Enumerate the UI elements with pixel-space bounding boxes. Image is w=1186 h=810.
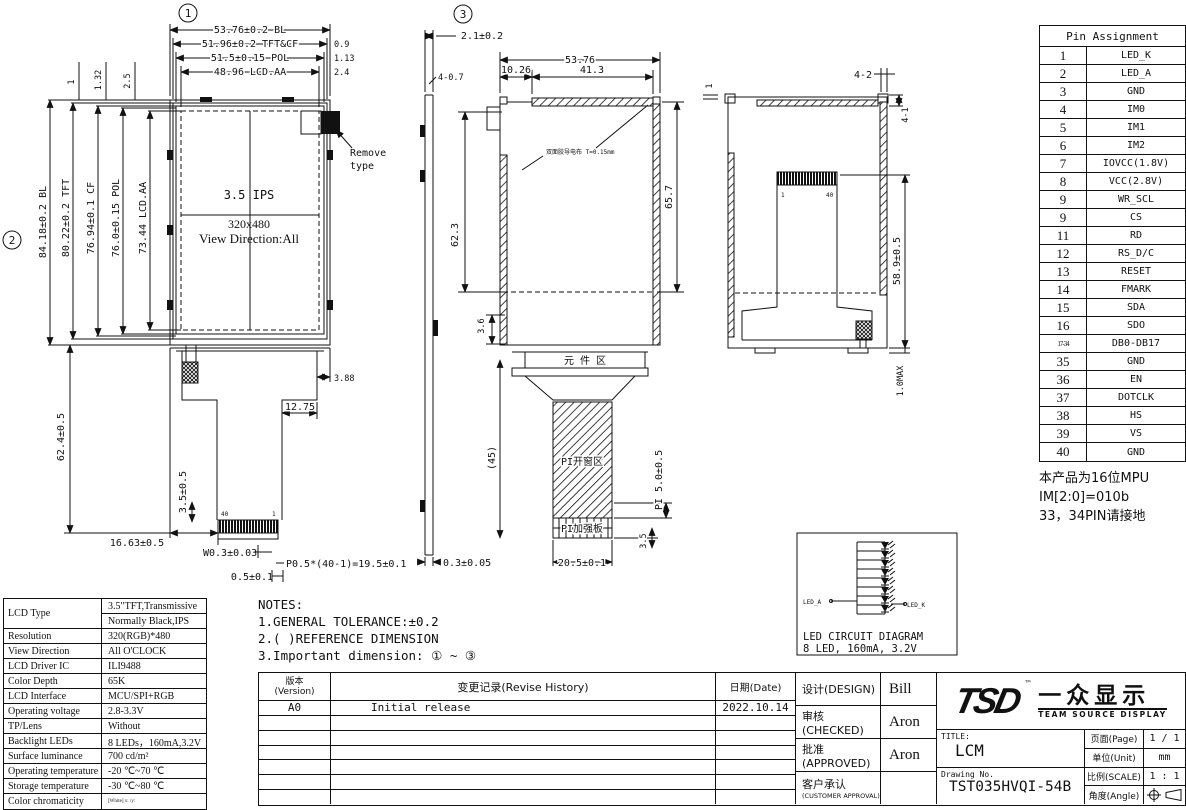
- pin-number-cell: 2: [1040, 65, 1087, 82]
- pin-table-row: 17-34 DB0-DB17: [1040, 335, 1185, 353]
- pin-signal-cell: RESET: [1087, 263, 1185, 280]
- spec-table-row: Storage temperature -30 ℃~80 ℃: [4, 779, 206, 794]
- svg-text:3.88: 3.88: [334, 374, 354, 384]
- led-diagram-subtitle: 8 LED, 160mA, 3.2V: [803, 643, 917, 655]
- pin-signal-cell: SDA: [1087, 299, 1185, 316]
- svg-text:76.0±0.15 POL: 76.0±0.15 POL: [111, 179, 122, 257]
- svg-text:4-1: 4-1: [901, 107, 911, 122]
- pin-table-row: 15 SDA: [1040, 299, 1185, 317]
- pin-signal-cell: EN: [1087, 371, 1185, 388]
- pin-table-row: 9 CS: [1040, 209, 1185, 227]
- svg-text:3.5±0.5: 3.5±0.5: [178, 471, 189, 513]
- drawing-no-value: TST035HVQI-54B: [941, 779, 1080, 795]
- led-cathode-label: LED_K: [907, 602, 925, 609]
- svg-text:48.96 LCD.AA: 48.96 LCD.AA: [214, 67, 286, 78]
- svg-text:41.3: 41.3: [580, 65, 604, 76]
- pin-signal-cell: WR_SCL: [1087, 191, 1185, 208]
- back-connector: [777, 172, 837, 185]
- approval-column: 设计(DESIGN) Bill 审核(CHECKED) Aron 批准(APPR…: [796, 673, 936, 804]
- svg-text:10.26: 10.26: [501, 65, 531, 76]
- view-direction-label: View Direction:All: [199, 231, 299, 246]
- svg-text:PI开窗区: PI开窗区: [561, 455, 603, 468]
- spec-label: LCD Driver IC: [4, 659, 102, 673]
- pin-number-cell: 38: [1040, 407, 1087, 424]
- spec-value: 65K: [102, 674, 206, 688]
- unit-row: 单位(Unit) mm: [1085, 749, 1185, 768]
- svg-text:62.3: 62.3: [450, 223, 461, 247]
- spec-row-lcd-type: LCD Type 3.5"TFT,Transmissive Normally B…: [4, 599, 206, 629]
- pin-table-row: 16 SDO: [1040, 317, 1185, 335]
- revision-row-empty: [259, 731, 796, 746]
- approved-row: 批准(APPROVED) Aron: [796, 739, 936, 772]
- title-block: TSD ™ 一众显示 TEAM SOURCE DISPLAY TITLE: LC…: [936, 673, 1185, 804]
- approved-label: 批准(APPROVED): [796, 739, 881, 771]
- title-value: LCM: [941, 741, 1080, 760]
- svg-text:1: 1: [781, 192, 785, 199]
- spec-table-body: Resolution 320(RGB)*480 View Direction A…: [4, 629, 206, 809]
- scale-row: 比例(SCALE) 1 : 1: [1085, 768, 1185, 787]
- tsd-logo-icon: TSD: [951, 683, 1022, 719]
- pin-table-title: Pin Assignment: [1040, 26, 1185, 47]
- revision-rows: A0 Initial release 2022.10.14: [259, 701, 796, 804]
- spec-table-row: LCD Driver IC ILI9488: [4, 659, 206, 674]
- svg-text:PI 5.0±0.5: PI 5.0±0.5: [654, 450, 665, 510]
- svg-text:16.63±0.5: 16.63±0.5: [110, 538, 164, 549]
- checked-row: 审核(CHECKED) Aron: [796, 706, 936, 739]
- page-row: 页面(Page) 1 / 1: [1085, 730, 1185, 749]
- pin-signal-cell: RD: [1087, 227, 1185, 244]
- svg-text:58.9±0.5: 58.9±0.5: [892, 237, 903, 285]
- checked-signature: Aron: [881, 706, 936, 738]
- pin-number-cell: 37: [1040, 389, 1087, 406]
- spec-label: Surface luminance: [4, 749, 102, 763]
- svg-text:40: 40: [826, 192, 834, 199]
- pin-1-label: 1: [272, 511, 276, 518]
- pin-signal-cell: FMARK: [1087, 281, 1185, 298]
- pin-number-cell: 14: [1040, 281, 1087, 298]
- pin-number-cell: 7: [1040, 155, 1087, 172]
- pin-table-row: 38 HS: [1040, 407, 1185, 425]
- spec-label: TP/Lens: [4, 719, 102, 733]
- notes-section: NOTES: 1.GENERAL TOLERANCE:±0.2 2.( )REF…: [258, 596, 476, 664]
- pin-table-row: 5 IM1: [1040, 119, 1185, 137]
- svg-text:(45): (45): [487, 446, 498, 470]
- angle-row: 角度(Angle): [1085, 786, 1185, 804]
- pin-40-label: 40: [221, 511, 229, 518]
- svg-text:3.6: 3.6: [477, 318, 487, 333]
- remove-note: Remove: [350, 148, 386, 159]
- revision-row-empty: [259, 760, 796, 775]
- pin-number-cell: 11: [1040, 227, 1087, 244]
- spec-table-row: Backlight LEDs 8 LEDs，160mA,3.2V: [4, 734, 206, 749]
- pin-table-row: 40 GND: [1040, 443, 1185, 461]
- spec-table-row: View Direction All O'CLOCK: [4, 644, 206, 659]
- pin-signal-cell: RS_D/C: [1087, 245, 1185, 262]
- pin-table-row: 36 EN: [1040, 371, 1185, 389]
- spec-table-row: Surface luminance 700 cd/m²: [4, 749, 206, 764]
- svg-text:2: 2: [9, 234, 16, 247]
- svg-text:20.5±0.1: 20.5±0.1: [558, 558, 606, 569]
- pin-table-row: 8 VCC(2.8V): [1040, 173, 1185, 191]
- mpu-note-line: 33，34PIN请接地: [1039, 507, 1149, 526]
- spec-label: Operating temperature: [4, 764, 102, 778]
- pin-number-cell: 12: [1040, 245, 1087, 262]
- svg-text:0.5±0.1: 0.5±0.1: [231, 572, 273, 583]
- pin-number-cell: 4: [1040, 101, 1087, 118]
- spec-table-row: LCD Interface MCU/SPI+RGB: [4, 689, 206, 704]
- revision-row-empty: [259, 746, 796, 761]
- spec-value: All O'CLOCK: [102, 644, 206, 658]
- tape-note: 双面胶导电布 T=0.15mm: [546, 148, 615, 156]
- pin-signal-cell: DOTCLK: [1087, 389, 1185, 406]
- pin-signal-cell: IOVCC(1.8V): [1087, 155, 1185, 172]
- pin-table-body: 1 LED_K 2 LED_A 3 GND 4 IM0 5 IM1 6 IM2 …: [1040, 47, 1185, 461]
- pin-signal-cell: IM1: [1087, 119, 1185, 136]
- svg-text:1.13: 1.13: [334, 54, 354, 64]
- svg-text:51.96±0.2 TFT&CF: 51.96±0.2 TFT&CF: [202, 39, 298, 50]
- svg-text:W0.3±0.03: W0.3±0.03: [203, 548, 257, 559]
- pin-number-cell: 39: [1040, 425, 1087, 442]
- pin-signal-cell: GND: [1087, 443, 1185, 461]
- pin-number-cell: 36: [1040, 371, 1087, 388]
- notes-line: 3.Important dimension: ① ~ ③: [258, 647, 476, 664]
- spec-label: LCD Type: [4, 599, 102, 628]
- pin-table-row: 3 GND: [1040, 83, 1185, 101]
- company-name-en: TEAM SOURCE DISPLAY: [1038, 708, 1167, 719]
- pin-table-row: 4 IM0: [1040, 101, 1185, 119]
- mpu-note-line: IM[2:0]=010b: [1039, 488, 1149, 507]
- notes-line: 1.GENERAL TOLERANCE:±0.2: [258, 613, 476, 630]
- svg-text:2.5: 2.5: [123, 73, 133, 88]
- revision-row: A0 Initial release 2022.10.14: [259, 701, 796, 716]
- pin-signal-cell: GND: [1087, 83, 1185, 100]
- svg-text:1: 1: [67, 79, 77, 84]
- svg-text:2.1±0.2: 2.1±0.2: [461, 31, 503, 42]
- pin-table-row: 37 DOTCLK: [1040, 389, 1185, 407]
- design-row: 设计(DESIGN) Bill: [796, 673, 936, 706]
- design-signature: Bill: [881, 673, 936, 705]
- spec-table-row: TP/Lens Without: [4, 719, 206, 734]
- customer-approval-row: 客户承认 (CUSTOMER APPROVAL): [796, 772, 936, 804]
- revision-row-empty: [259, 790, 796, 804]
- checked-label: 审核(CHECKED): [796, 706, 881, 738]
- revision-desc: Initial release: [331, 701, 716, 715]
- spec-value: Without: [102, 719, 206, 733]
- pin-number-cell: 5: [1040, 119, 1087, 136]
- svg-text:P0.5*(40-1)=19.5±0.1: P0.5*(40-1)=19.5±0.1: [286, 559, 406, 570]
- resolution-label: 320x480: [228, 217, 270, 231]
- pin-number-cell: 9: [1040, 191, 1087, 208]
- pin-table-row: 7 IOVCC(1.8V): [1040, 155, 1185, 173]
- pin-number-cell: 35: [1040, 353, 1087, 370]
- spec-value: 8 LEDs，160mA,3.2V: [102, 734, 206, 748]
- svg-text:80.22±0.2 TFT: 80.22±0.2 TFT: [61, 179, 72, 257]
- revision-header: 版本 (Version) 变更记录(Revise History) 日期(Dat…: [259, 673, 796, 701]
- spec-value: -20 ℃~70 ℃: [102, 764, 206, 778]
- front-view: Remove type 3.5 IPS 320x480 View Directi…: [3, 4, 406, 583]
- spec-value: 2.8-3.3V: [102, 704, 206, 718]
- drawing-no-label: Drawing No.: [941, 770, 1080, 779]
- svg-text:PI加强板: PI加强板: [561, 522, 603, 535]
- pin-table-row: 35 GND: [1040, 353, 1185, 371]
- pin-signal-cell: GND: [1087, 353, 1185, 370]
- pin-signal-cell: IM2: [1087, 137, 1185, 154]
- svg-text:2.4: 2.4: [334, 68, 349, 78]
- spec-label: Storage temperature: [4, 779, 102, 793]
- svg-text:4-0.7: 4-0.7: [438, 73, 464, 83]
- company-name-cn: 一众显示: [1038, 684, 1167, 708]
- svg-text:0.9: 0.9: [334, 40, 349, 50]
- spec-value: 320(RGB)*480: [102, 629, 206, 643]
- pin-table-row: 39 VS: [1040, 425, 1185, 443]
- pin-signal-cell: VS: [1087, 425, 1185, 442]
- svg-text:1: 1: [705, 83, 715, 88]
- led-circuit-diagram: LED_A LED_K LED CIRCUIT DIAGRAM 8 LED, 1…: [797, 533, 957, 655]
- pin-table-row: 2 LED_A: [1040, 65, 1185, 83]
- svg-text:84.18±0.2 BL: 84.18±0.2 BL: [38, 186, 49, 258]
- spec-value: ILI9488: [102, 659, 206, 673]
- spec-label: LCD Interface: [4, 689, 102, 703]
- pin-table-row: 6 IM2: [1040, 137, 1185, 155]
- revision-version: A0: [259, 701, 331, 715]
- pin-table-row: 14 FMARK: [1040, 281, 1185, 299]
- pin-table-row: 12 RS_D/C: [1040, 245, 1185, 263]
- pin-signal-cell: LED_A: [1087, 65, 1185, 82]
- pin-number-cell: 9: [1040, 209, 1087, 226]
- pin-table-row: 13 RESET: [1040, 263, 1185, 281]
- pin-number-cell: 16: [1040, 317, 1087, 334]
- customer-approval-label: 客户承认 (CUSTOMER APPROVAL): [796, 772, 881, 804]
- svg-text:62.4±0.5: 62.4±0.5: [56, 413, 67, 461]
- design-label: 设计(DESIGN): [796, 673, 881, 705]
- pin-number-cell: 3: [1040, 83, 1087, 100]
- pin-number-cell: 1: [1040, 47, 1087, 64]
- svg-text:1: 1: [185, 7, 192, 20]
- date-header: 日期(Date): [716, 673, 796, 700]
- spec-value: -30 ℃~80 ℃: [102, 779, 206, 793]
- dim-label: 53.76±0.2 BL: [214, 25, 286, 36]
- spec-table-row: Resolution 320(RGB)*480: [4, 629, 206, 644]
- svg-text:73.44 LCD.AA: 73.44 LCD.AA: [138, 182, 149, 254]
- customer-signature: [881, 772, 936, 804]
- svg-text:12.75: 12.75: [285, 402, 315, 413]
- pin-assignment-table: Pin Assignment 1 LED_K 2 LED_A 3 GND 4 I…: [1039, 25, 1186, 462]
- pin-signal-cell: CS: [1087, 209, 1185, 226]
- spec-label: Resolution: [4, 629, 102, 643]
- company-logo: TSD ™ 一众显示 TEAM SOURCE DISPLAY: [937, 673, 1185, 730]
- svg-text:51.5±0.15 POL: 51.5±0.15 POL: [211, 53, 289, 64]
- mpu-note-line: 本产品为16位MPU: [1039, 469, 1149, 488]
- pin-signal-cell: LED_K: [1087, 47, 1185, 64]
- spec-label: Backlight LEDs: [4, 734, 102, 748]
- pin-number-cell: 17-34: [1040, 335, 1087, 352]
- pin-signal-cell: IM0: [1087, 101, 1185, 118]
- mpu-note: 本产品为16位MPU IM[2:0]=010b 33，34PIN请接地: [1039, 469, 1149, 526]
- svg-text:3: 3: [460, 8, 467, 21]
- revision-row-empty: [259, 716, 796, 731]
- panel-size-label: 3.5 IPS: [224, 188, 275, 202]
- svg-text:0.3±0.05: 0.3±0.05: [443, 558, 491, 569]
- svg-text:76.94±0.1 CF: 76.94±0.1 CF: [86, 182, 97, 254]
- pin-number-cell: 6: [1040, 137, 1087, 154]
- pin-number-cell: 40: [1040, 443, 1087, 461]
- spec-table-row: Color Depth 65K: [4, 674, 206, 689]
- pin-number-cell: 13: [1040, 263, 1087, 280]
- third-angle-projection-icon: [1146, 788, 1184, 802]
- pin-signal-cell: VCC(2.8V): [1087, 173, 1185, 190]
- svg-text:1.0MAX: 1.0MAX: [896, 365, 906, 397]
- version-header: 版本 (Version): [259, 673, 331, 700]
- spec-label: Color Depth: [4, 674, 102, 688]
- back-view: 1 40 4-2 4-1 58.9±0.5 1.0MAX: [725, 68, 911, 396]
- revision-row-empty: [259, 775, 796, 790]
- component-area-label: 元 件 区: [564, 355, 606, 367]
- svg-text:1.32: 1.32: [94, 70, 104, 90]
- pin-table-row: 1 LED_K: [1040, 47, 1185, 65]
- section-view: 3 2.1±0.2 4-0.7 双面胶导电布 T=0.15mm 53.76 10…: [417, 5, 718, 569]
- pin-table-row: 9 WR_SCL: [1040, 191, 1185, 209]
- spec-value: Normally Black,IPS: [102, 614, 206, 628]
- spec-label: Operating voltage: [4, 704, 102, 718]
- led-anode-label: LED_A: [803, 599, 821, 606]
- spec-value: MCU/SPI+RGB: [102, 689, 206, 703]
- svg-text:type: type: [350, 161, 374, 172]
- history-header: 变更记录(Revise History): [331, 673, 716, 700]
- fpc-connector: [218, 520, 278, 533]
- spec-table-row: Operating voltage 2.8-3.3V: [4, 704, 206, 719]
- spec-table-row: Operating temperature -20 ℃~70 ℃: [4, 764, 206, 779]
- notes-line: 2.( )REFERENCE DIMENSION: [258, 630, 476, 647]
- revision-date: 2022.10.14: [716, 701, 796, 715]
- bottom-block: 版本 (Version) 变更记录(Revise History) 日期(Dat…: [258, 672, 1186, 806]
- pin-number-cell: 15: [1040, 299, 1087, 316]
- led-diagram-title: LED CIRCUIT DIAGRAM: [803, 631, 923, 643]
- pin-signal-cell: SDO: [1087, 317, 1185, 334]
- title-label: TITLE:: [941, 732, 1080, 741]
- svg-text:4-2: 4-2: [854, 70, 872, 81]
- spec-table: LCD Type 3.5"TFT,Transmissive Normally B…: [3, 598, 207, 810]
- notes-title: NOTES:: [258, 596, 476, 613]
- spec-label: View Direction: [4, 644, 102, 658]
- svg-text:3.5: 3.5: [639, 533, 649, 548]
- approved-signature: Aron: [881, 739, 936, 771]
- pin-signal-cell: DB0-DB17: [1087, 335, 1185, 352]
- trademark-symbol: ™: [1024, 679, 1032, 688]
- pin-number-cell: 8: [1040, 173, 1087, 190]
- spec-value: 700 cd/m²: [102, 749, 206, 763]
- svg-text:65.7: 65.7: [664, 185, 675, 209]
- spec-value: 3.5"TFT,Transmissive: [102, 599, 206, 614]
- pin-signal-cell: HS: [1087, 407, 1185, 424]
- pin-table-row: 11 RD: [1040, 227, 1185, 245]
